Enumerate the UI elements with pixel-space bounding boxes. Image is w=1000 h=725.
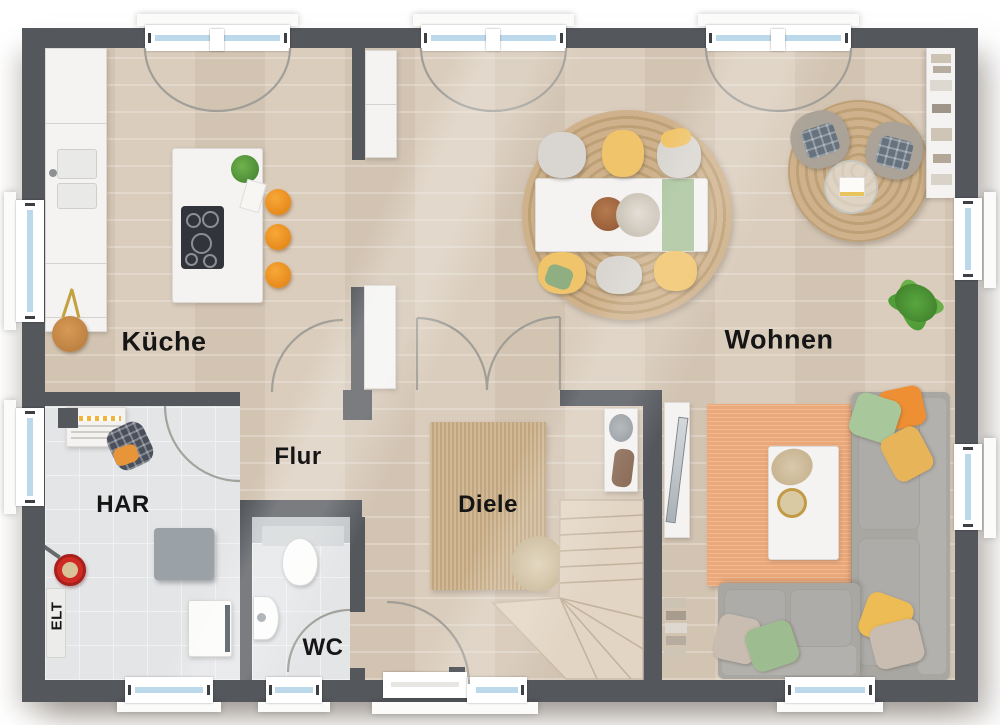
- frame-tick: [207, 685, 210, 695]
- frame-tick: [869, 685, 872, 695]
- frame-tick: [25, 411, 35, 414]
- books: [931, 54, 951, 63]
- counter-divider: [46, 263, 106, 264]
- clothespin-row: [71, 416, 121, 421]
- room-label-har: HAR: [96, 491, 150, 519]
- books: [666, 636, 686, 645]
- books: [930, 80, 952, 91]
- wall-stub-top: [352, 48, 365, 160]
- frame-tick: [25, 203, 35, 206]
- room-label-flur: Flur: [274, 443, 321, 471]
- burner: [203, 254, 217, 268]
- dining-chair: [596, 256, 642, 294]
- french-door-kitchen: [145, 25, 290, 51]
- burner: [185, 253, 198, 266]
- washing-machine: [188, 600, 232, 657]
- utility-unit: [154, 528, 214, 580]
- dining-chair: [602, 130, 644, 177]
- glazing: [965, 208, 971, 270]
- wall-wc-left: [240, 517, 252, 680]
- window-kitchen-left: [16, 200, 44, 322]
- gold-tray: [777, 488, 807, 518]
- sink-basin: [57, 149, 97, 179]
- burner: [186, 213, 201, 228]
- frame-tick: [316, 685, 319, 695]
- books: [931, 174, 952, 185]
- rack-rail: [71, 425, 121, 427]
- fruit-basket: [52, 316, 88, 352]
- floorplan: Küche Wohnen Flur Diele HAR WC ELT: [0, 0, 1000, 725]
- frame-tick: [284, 33, 287, 43]
- palm-leaf: [888, 276, 944, 329]
- wall-duct-block: [58, 408, 78, 428]
- window-wc-bottom: [266, 677, 322, 703]
- kitchen-island: [172, 148, 263, 303]
- frame-tick: [963, 274, 973, 277]
- glazing: [476, 687, 518, 693]
- cooktop: [181, 206, 224, 269]
- exterior-sill: [4, 192, 16, 330]
- exterior-sill: [984, 438, 996, 538]
- mullion: [771, 29, 785, 51]
- exterior-sill: [777, 702, 883, 712]
- glazing: [27, 418, 33, 496]
- cabinet-divider: [366, 104, 396, 105]
- pantry-cabinet: [365, 50, 397, 158]
- entry-door-leaf: [383, 672, 467, 698]
- wall-kueche-har: [45, 392, 240, 406]
- bar-stool: [265, 224, 291, 250]
- frame-tick: [560, 33, 563, 43]
- door-panel-line: [391, 682, 459, 687]
- books: [666, 611, 686, 620]
- books: [664, 648, 686, 657]
- books: [931, 128, 952, 141]
- dining-chair: [538, 252, 586, 294]
- washer-door-edge: [225, 605, 230, 652]
- books: [664, 598, 686, 608]
- plaid-pillow: [800, 121, 842, 160]
- sofa-seat-cushion: [790, 589, 852, 647]
- dining-chair: [657, 133, 701, 178]
- cutting-board: [239, 179, 266, 213]
- window-har-bottom: [125, 677, 213, 703]
- frame-tick: [963, 524, 973, 527]
- room-label-diele: Diele: [458, 491, 518, 519]
- frame-tick: [709, 33, 712, 43]
- room-label-wohnen: Wohnen: [725, 325, 834, 356]
- door-handle: [449, 667, 465, 672]
- dining-chair: [654, 251, 697, 291]
- glazing: [275, 687, 313, 693]
- mullion: [486, 29, 500, 51]
- frame-tick: [424, 33, 427, 43]
- books: [665, 623, 687, 633]
- cleaning-caddy: [54, 554, 86, 586]
- sideboard: [664, 402, 690, 538]
- glazing: [965, 454, 971, 520]
- napkin: [543, 262, 575, 292]
- sink-basin: [57, 183, 97, 209]
- window-wohnen-right-upper: [954, 198, 982, 280]
- palm-plant: [884, 277, 946, 333]
- dining-table: [535, 178, 708, 252]
- wall-foot: [343, 390, 372, 420]
- wreath-decor: [609, 414, 633, 442]
- exterior-sill: [4, 400, 16, 514]
- burner: [191, 233, 212, 254]
- window-har-left: [16, 408, 44, 506]
- caddy-contents: [62, 562, 78, 578]
- table-runner: [662, 179, 694, 251]
- faucet: [49, 169, 57, 177]
- exterior-sill: [258, 702, 330, 712]
- wall-flur-wc: [240, 500, 362, 517]
- coffee-table-books: [839, 177, 865, 197]
- pampas-decor: [766, 443, 818, 491]
- hall-wardrobe: [364, 285, 396, 389]
- entry-sidelight: [467, 677, 527, 703]
- window-wohnen-bottom: [785, 677, 875, 703]
- bar-stool: [265, 189, 291, 215]
- book-spine: [840, 192, 864, 196]
- frame-tick: [845, 33, 848, 43]
- bar-stool: [265, 262, 291, 288]
- wall-wc-right-stub: [350, 668, 365, 680]
- frame-tick: [521, 685, 524, 695]
- glazing: [27, 210, 33, 312]
- wall-exterior-left: [22, 28, 45, 702]
- toilet-bowl: [282, 538, 318, 586]
- window-wohnen-right-lower: [954, 444, 982, 530]
- bookshelf: [926, 48, 956, 198]
- entry-step: [372, 702, 538, 714]
- exterior-sill: [117, 702, 221, 712]
- frame-tick: [963, 447, 973, 450]
- plaid-pillow: [874, 134, 914, 171]
- leaning-mirror: [666, 417, 689, 523]
- glazing: [135, 687, 203, 693]
- frame-tick: [269, 685, 272, 695]
- french-door-living: [706, 25, 851, 51]
- room-label-elt: ELT: [49, 602, 66, 631]
- frame-tick: [963, 201, 973, 204]
- frame-tick: [128, 685, 131, 695]
- frame-tick: [25, 500, 35, 503]
- hanging-coat: [611, 448, 635, 488]
- frame-tick: [25, 316, 35, 319]
- wc-sink: [253, 596, 279, 640]
- wall-stub-mid: [351, 287, 364, 392]
- frame-tick: [788, 685, 791, 695]
- french-door-dining: [421, 25, 566, 51]
- room-label-kueche: Küche: [121, 327, 206, 358]
- wall-exterior-right: [955, 28, 978, 702]
- glass-coffee-table: [824, 160, 878, 214]
- book-stack: [664, 598, 688, 658]
- books: [933, 154, 951, 163]
- dining-chair: [538, 132, 586, 178]
- burner: [202, 211, 219, 228]
- sink-drain: [257, 613, 266, 622]
- books: [933, 66, 951, 73]
- room-label-wc: WC: [303, 634, 344, 662]
- frame-tick: [148, 33, 151, 43]
- island-plant: [231, 155, 259, 183]
- books: [932, 104, 951, 113]
- living-coffee-table: [768, 446, 839, 560]
- coat-rack-panel: [604, 408, 638, 492]
- mullion: [210, 29, 224, 51]
- dried-flowers: [616, 193, 660, 237]
- wall-wc-right: [350, 517, 365, 612]
- exterior-sill: [984, 192, 996, 288]
- glazing: [795, 687, 865, 693]
- kitchen-counter: [45, 48, 107, 332]
- counter-divider: [46, 123, 106, 124]
- wall-staircase: [643, 390, 662, 680]
